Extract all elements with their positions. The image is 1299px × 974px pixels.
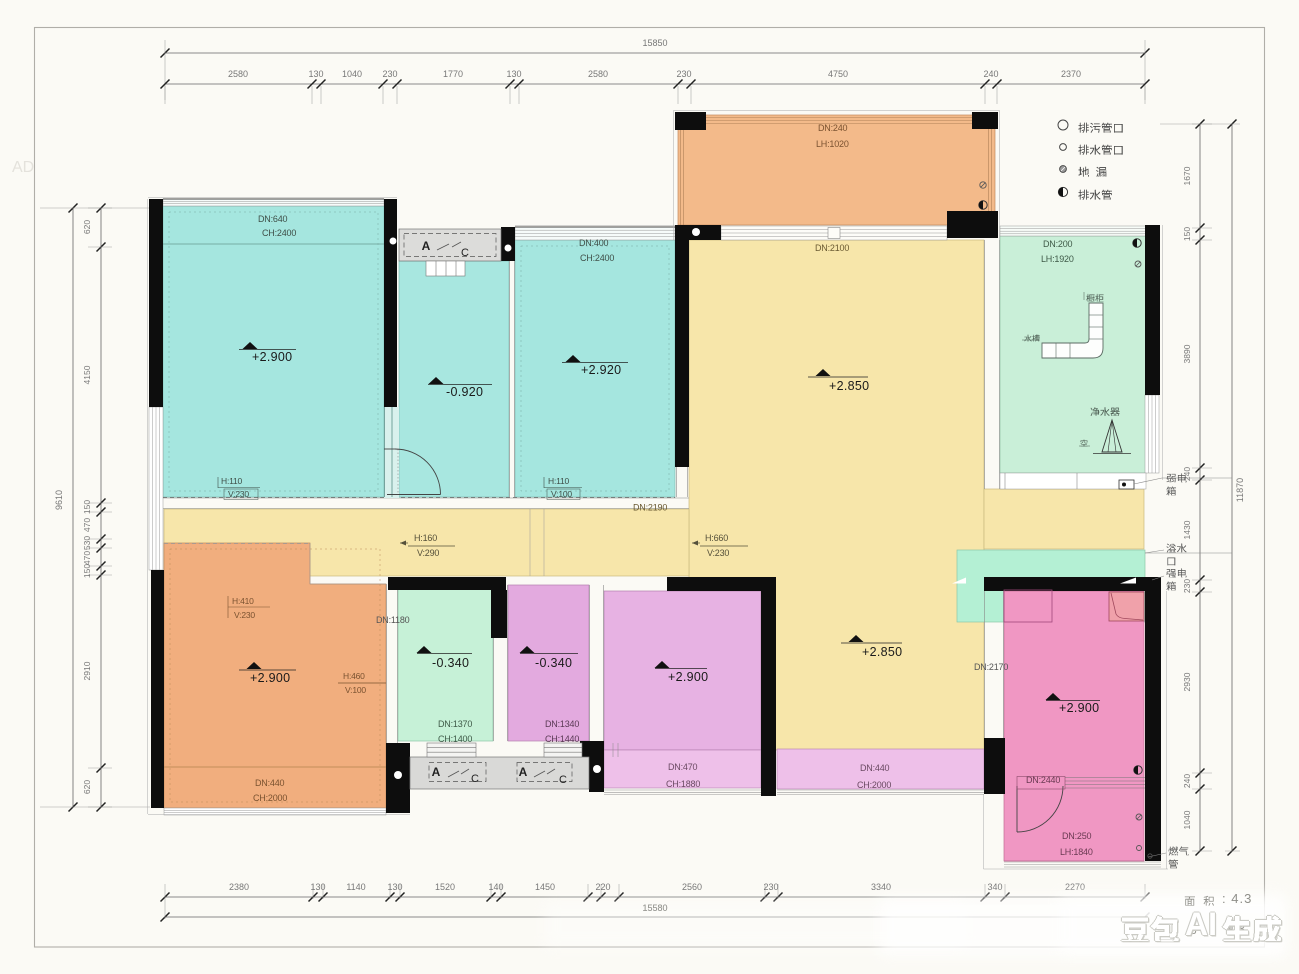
- svg-text:DN:2440: DN:2440: [1026, 775, 1060, 785]
- svg-text:3890: 3890: [1182, 344, 1192, 363]
- svg-text:V:230: V:230: [228, 489, 249, 499]
- svg-text:240: 240: [1182, 467, 1192, 481]
- svg-text:130: 130: [506, 69, 521, 79]
- svg-text:4750: 4750: [828, 69, 848, 79]
- svg-text:H:110: H:110: [221, 476, 243, 486]
- svg-text:V:230: V:230: [707, 548, 729, 558]
- svg-text:V:100: V:100: [551, 489, 572, 499]
- svg-text:340: 340: [987, 882, 1002, 892]
- svg-text:+2.900: +2.900: [250, 671, 290, 685]
- svg-text:-0.340: -0.340: [535, 656, 572, 670]
- svg-text:AD: AD: [12, 159, 34, 176]
- svg-text:+2.900: +2.900: [668, 670, 708, 684]
- svg-text:1140: 1140: [346, 882, 365, 892]
- svg-text:C: C: [471, 773, 479, 785]
- svg-text:230: 230: [763, 882, 778, 892]
- svg-text:150: 150: [82, 564, 92, 578]
- svg-text:1450: 1450: [535, 882, 555, 892]
- svg-text:9610: 9610: [54, 490, 64, 510]
- svg-text:2270: 2270: [1065, 882, 1085, 892]
- svg-text:-0.920: -0.920: [446, 385, 483, 399]
- svg-text:C: C: [461, 247, 469, 259]
- svg-text:1770: 1770: [443, 69, 463, 79]
- svg-text:+2.900: +2.900: [1059, 701, 1099, 715]
- svg-text:DN:440: DN:440: [255, 778, 285, 788]
- svg-text:240: 240: [983, 69, 998, 79]
- svg-text:H:460: H:460: [343, 671, 365, 681]
- svg-text:130: 130: [310, 882, 325, 892]
- svg-text:LH:1840: LH:1840: [1060, 847, 1093, 857]
- svg-text:+2.850: +2.850: [829, 379, 869, 393]
- svg-text:DN:470: DN:470: [668, 762, 698, 772]
- svg-text:CH:2400: CH:2400: [262, 228, 296, 238]
- svg-text:470: 470: [82, 518, 92, 532]
- svg-text:230: 230: [676, 69, 691, 79]
- svg-text:A: A: [422, 239, 431, 253]
- svg-text:H:660: H:660: [705, 533, 728, 543]
- svg-text:220: 220: [595, 882, 610, 892]
- svg-text:+2.850: +2.850: [862, 645, 902, 659]
- svg-text:CH:1440: CH:1440: [545, 734, 579, 744]
- svg-text:LH:1920: LH:1920: [1041, 254, 1074, 264]
- svg-text:H:410: H:410: [232, 596, 254, 606]
- svg-text:DN:250: DN:250: [1062, 831, 1092, 841]
- svg-text:CH:2400: CH:2400: [580, 253, 614, 263]
- svg-text:230: 230: [382, 69, 397, 79]
- svg-text:4150: 4150: [82, 365, 92, 384]
- svg-text:2580: 2580: [588, 69, 608, 79]
- svg-text:2370: 2370: [1061, 69, 1081, 79]
- svg-text:240: 240: [1182, 774, 1192, 788]
- svg-text:C: C: [559, 774, 567, 786]
- svg-text:2910: 2910: [82, 661, 92, 680]
- svg-text:2380: 2380: [229, 882, 249, 892]
- svg-text:CH:1880: CH:1880: [666, 779, 700, 789]
- svg-text:150: 150: [82, 500, 92, 514]
- svg-text:H:160: H:160: [414, 533, 437, 543]
- svg-text:130: 130: [308, 69, 323, 79]
- svg-text:H:110: H:110: [548, 476, 570, 486]
- svg-text:620: 620: [82, 220, 92, 234]
- svg-text:15580: 15580: [642, 903, 667, 913]
- svg-text:DN:2100: DN:2100: [815, 243, 849, 253]
- svg-text:140: 140: [488, 882, 503, 892]
- svg-text:CH:1400: CH:1400: [438, 734, 472, 744]
- svg-text:130: 130: [387, 882, 402, 892]
- svg-text:CH:2000: CH:2000: [857, 780, 891, 790]
- svg-text:-0.340: -0.340: [432, 656, 469, 670]
- svg-text:2930: 2930: [1182, 672, 1192, 691]
- svg-text:1520: 1520: [435, 882, 455, 892]
- svg-text:150: 150: [1182, 227, 1192, 241]
- svg-text:V:290: V:290: [417, 548, 439, 558]
- svg-text:DN:2170: DN:2170: [974, 662, 1008, 672]
- svg-text:A: A: [519, 765, 528, 779]
- svg-text:DN:440: DN:440: [860, 763, 890, 773]
- svg-text:+2.900: +2.900: [252, 350, 292, 364]
- svg-text:DN:2190: DN:2190: [633, 503, 667, 513]
- svg-text:1040: 1040: [1182, 810, 1192, 829]
- svg-text:A: A: [432, 765, 441, 779]
- svg-text:11870: 11870: [1235, 478, 1245, 502]
- svg-text:LH:1020: LH:1020: [816, 139, 849, 149]
- svg-text:V:230: V:230: [234, 610, 255, 620]
- svg-text:1430: 1430: [1182, 520, 1192, 539]
- svg-text:DN:200: DN:200: [1043, 239, 1073, 249]
- svg-text:15850: 15850: [642, 38, 667, 48]
- svg-text:2580: 2580: [228, 69, 248, 79]
- svg-text:3340: 3340: [871, 882, 891, 892]
- svg-text:470: 470: [82, 551, 92, 565]
- svg-text:DN:1340: DN:1340: [545, 719, 579, 729]
- svg-text:DN:1370: DN:1370: [438, 719, 472, 729]
- svg-text:DN:400: DN:400: [579, 238, 609, 248]
- svg-text:V:100: V:100: [345, 685, 366, 695]
- svg-text:: 4.3: : 4.3: [1222, 891, 1252, 906]
- svg-text:530: 530: [82, 536, 92, 550]
- svg-text:DN:1180: DN:1180: [376, 615, 410, 625]
- svg-text:CH:2000: CH:2000: [253, 793, 287, 803]
- svg-text:1670: 1670: [1182, 166, 1192, 185]
- svg-text:1040: 1040: [342, 69, 362, 79]
- svg-text:DN:240: DN:240: [818, 123, 848, 133]
- svg-text:+2.920: +2.920: [581, 363, 621, 377]
- svg-text:230: 230: [1182, 579, 1192, 593]
- svg-text:DN:640: DN:640: [258, 214, 288, 224]
- svg-text:2560: 2560: [682, 882, 702, 892]
- svg-text:620: 620: [82, 780, 92, 794]
- svg-text:AI: AI: [1185, 906, 1217, 942]
